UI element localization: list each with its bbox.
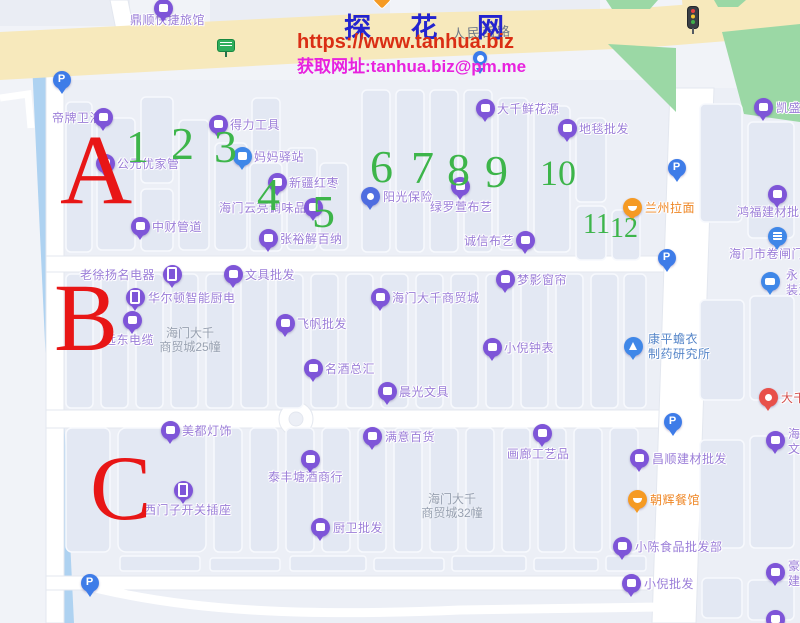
stall-number: 12 bbox=[610, 215, 638, 243]
stall-number: 4 bbox=[257, 172, 280, 218]
poi-label[interactable]: 华尔顿智能厨电 bbox=[148, 291, 236, 306]
poi-glyph bbox=[130, 290, 140, 304]
poi-glyph bbox=[481, 104, 490, 112]
poi-glyph bbox=[229, 270, 238, 278]
poi-label[interactable]: 康平蟾衣制药研究所 bbox=[648, 332, 711, 362]
poi-label[interactable]: 地毯批发 bbox=[579, 122, 629, 137]
watermark-contact: 获取网址:tanhua.biz@pm.me bbox=[297, 52, 526, 77]
poi-glyph bbox=[166, 426, 175, 434]
poi-label[interactable]: 大千鲜花源 bbox=[497, 102, 560, 117]
poi-pin[interactable] bbox=[311, 518, 330, 537]
poi-glyph bbox=[627, 579, 636, 587]
poi-pin[interactable] bbox=[754, 98, 773, 117]
poi-pin[interactable] bbox=[759, 388, 778, 407]
poi-pin[interactable] bbox=[558, 119, 577, 138]
poi-pin[interactable] bbox=[371, 288, 390, 307]
poi-glyph bbox=[765, 278, 775, 285]
parking-icon[interactable]: P bbox=[81, 574, 99, 592]
poi-pin[interactable] bbox=[628, 490, 647, 509]
poi-label[interactable]: 凯盛 bbox=[776, 101, 800, 116]
traffic-light-icon[interactable] bbox=[688, 7, 698, 28]
poi-label[interactable]: 满意百货 bbox=[385, 430, 435, 445]
poi-glyph bbox=[765, 394, 772, 401]
poi-label[interactable]: 晨光文具 bbox=[399, 385, 449, 400]
poi-glyph bbox=[306, 455, 315, 463]
poi-label[interactable]: 美都灯饰 bbox=[182, 424, 232, 439]
poi-label[interactable]: 名酒总汇 bbox=[325, 362, 375, 377]
parking-icon[interactable]: P bbox=[668, 159, 686, 177]
poi-glyph: P bbox=[669, 416, 676, 427]
poi-pin[interactable] bbox=[766, 563, 785, 582]
poi-label[interactable]: 兰州拉面 bbox=[645, 201, 695, 216]
poi-label[interactable]: 飞帆批发 bbox=[297, 317, 347, 332]
poi-glyph bbox=[281, 319, 290, 327]
building-name-label: 海门大千商贸城32幢 bbox=[416, 492, 488, 520]
poi-glyph bbox=[773, 190, 782, 198]
poi-pin[interactable] bbox=[533, 424, 552, 443]
stall-number: 5 bbox=[312, 189, 335, 235]
poi-glyph bbox=[136, 222, 145, 230]
stall-number: 9 bbox=[485, 149, 508, 195]
stall-number: 6 bbox=[370, 144, 393, 190]
poi-glyph bbox=[264, 234, 273, 242]
poi-pin[interactable] bbox=[624, 337, 643, 356]
poi-glyph bbox=[383, 387, 392, 395]
poi-glyph bbox=[521, 236, 530, 244]
poi-pin[interactable] bbox=[483, 338, 502, 357]
poi-pin[interactable] bbox=[259, 229, 278, 248]
stall-number: 3 bbox=[214, 124, 237, 170]
poi-pin[interactable] bbox=[363, 427, 382, 446]
poi-pin[interactable] bbox=[768, 185, 787, 204]
stall-number: 8 bbox=[447, 147, 470, 193]
stall-number: 10 bbox=[540, 155, 576, 191]
poi-glyph bbox=[368, 432, 377, 440]
poi-pin[interactable] bbox=[378, 382, 397, 401]
poi-label[interactable]: 昌顺建材批发 bbox=[652, 452, 727, 467]
poi-glyph bbox=[759, 103, 768, 111]
poi-label[interactable]: 大千 bbox=[781, 391, 800, 406]
poi-label[interactable]: 豪建 bbox=[788, 559, 800, 589]
poi-pin[interactable] bbox=[131, 217, 150, 236]
poi-glyph bbox=[167, 267, 177, 281]
poi-glyph bbox=[563, 124, 572, 132]
stall-number: 7 bbox=[411, 145, 434, 191]
parking-icon[interactable]: P bbox=[664, 413, 682, 431]
poi-glyph bbox=[376, 293, 385, 301]
parking-icon[interactable]: P bbox=[658, 249, 676, 267]
parking-icon[interactable]: P bbox=[53, 71, 71, 89]
zone-letter: B bbox=[54, 270, 118, 366]
poi-glyph bbox=[501, 275, 510, 283]
poi-glyph: P bbox=[86, 577, 93, 588]
poi-label[interactable]: 朝辉餐馆 bbox=[650, 493, 700, 508]
poi-glyph bbox=[538, 429, 547, 437]
poi-label[interactable]: 小倪钟表 bbox=[504, 341, 554, 356]
poi-pin[interactable] bbox=[224, 265, 243, 284]
poi-pin[interactable] bbox=[766, 610, 785, 623]
poi-label[interactable]: 海门大千商贸城 bbox=[392, 291, 480, 306]
poi-glyph bbox=[635, 454, 644, 462]
poi-glyph bbox=[771, 436, 780, 444]
poi-label[interactable]: 厨卫批发 bbox=[333, 521, 383, 536]
zone-letter: C bbox=[90, 442, 151, 534]
poi-pin[interactable] bbox=[766, 431, 785, 450]
poi-label[interactable]: 中财管道 bbox=[152, 220, 202, 235]
building-name-label: 海门大千商贸城25幢 bbox=[154, 326, 226, 354]
poi-pin[interactable] bbox=[613, 537, 632, 556]
stall-number: 2 bbox=[171, 121, 194, 167]
watermark-url: https://www.tanhua.biz bbox=[297, 31, 514, 54]
poi-label[interactable]: 得力工具 bbox=[230, 118, 280, 133]
stall-number: 1 bbox=[126, 124, 149, 170]
poi-pin[interactable] bbox=[123, 311, 142, 330]
poi-glyph bbox=[771, 615, 780, 623]
bus-stop-icon[interactable] bbox=[218, 40, 234, 51]
poi-label[interactable]: 妈妈驿站 bbox=[254, 150, 304, 165]
poi-pin[interactable] bbox=[304, 359, 323, 378]
poi-label[interactable]: 西门子开关插座 bbox=[144, 503, 232, 518]
poi-glyph bbox=[628, 206, 637, 211]
poi-pin[interactable] bbox=[630, 449, 649, 468]
poi-glyph bbox=[367, 193, 374, 200]
poi-glyph bbox=[159, 4, 168, 12]
poi-glyph bbox=[773, 232, 782, 240]
poi-pin[interactable] bbox=[622, 574, 641, 593]
poi-label[interactable]: 小倪批发 bbox=[644, 577, 694, 592]
poi-label[interactable]: 诚信布艺 bbox=[464, 234, 514, 249]
poi-glyph bbox=[488, 343, 497, 351]
poi-label[interactable]: 绿罗萱布艺 bbox=[430, 200, 493, 215]
poi-label[interactable]: 画廊工艺品 bbox=[507, 447, 570, 462]
poi-pin[interactable] bbox=[768, 227, 787, 246]
poi-pin[interactable] bbox=[163, 265, 182, 284]
poi-label[interactable]: 海门市卷闸门 bbox=[729, 247, 800, 262]
poi-glyph bbox=[629, 342, 637, 350]
poi-pin[interactable] bbox=[126, 288, 145, 307]
poi-glyph bbox=[178, 483, 188, 497]
poi-label[interactable]: 梦影窗帘 bbox=[517, 273, 567, 288]
poi-glyph bbox=[316, 523, 325, 531]
poi-pin[interactable] bbox=[276, 314, 295, 333]
poi-glyph: P bbox=[58, 74, 65, 85]
map-canvas[interactable]: 人民西路 鼎顺快捷旅馆凯盛帝牌卫浴得力工具妈妈驿站公元优家管新疆红枣海门云亮调味… bbox=[0, 0, 800, 623]
poi-label[interactable]: 鸿福建材批发 bbox=[737, 205, 800, 220]
poi-glyph bbox=[128, 316, 137, 324]
poi-pin[interactable] bbox=[301, 450, 320, 469]
zone-letter: A bbox=[60, 120, 132, 220]
poi-label[interactable]: 海文 bbox=[788, 427, 800, 457]
poi-glyph bbox=[771, 568, 780, 576]
stall-number: 11 bbox=[583, 211, 610, 239]
poi-pin[interactable] bbox=[496, 270, 515, 289]
poi-pin[interactable] bbox=[516, 231, 535, 250]
poi-label[interactable]: 永昌装潢 bbox=[786, 268, 800, 298]
poi-glyph bbox=[309, 364, 318, 372]
poi-pin[interactable] bbox=[476, 99, 495, 118]
poi-label[interactable]: 小陈食品批发部 bbox=[635, 540, 723, 555]
poi-glyph bbox=[633, 498, 642, 503]
poi-pin[interactable] bbox=[761, 272, 780, 291]
poi-glyph bbox=[618, 542, 627, 550]
poi-pin[interactable] bbox=[174, 481, 193, 500]
poi-label[interactable]: 文具批发 bbox=[245, 268, 295, 283]
poi-glyph bbox=[238, 152, 247, 160]
poi-glyph: P bbox=[673, 162, 680, 173]
poi-pin[interactable] bbox=[161, 421, 180, 440]
poi-glyph: P bbox=[663, 252, 670, 263]
poi-pin[interactable] bbox=[154, 0, 173, 18]
